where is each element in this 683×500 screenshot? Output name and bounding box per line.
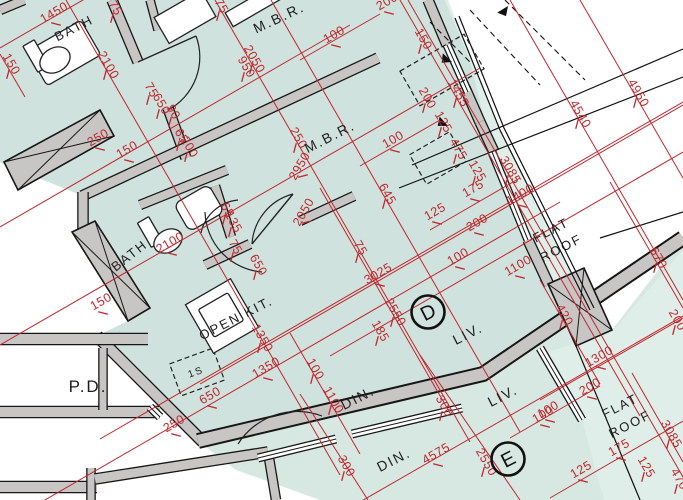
- dimension-tick: [171, 434, 181, 437]
- dimension-tick: [98, 312, 108, 315]
- room-label: P.D.: [69, 377, 108, 396]
- floorplan-canvas: 1450752100150756509065200150250205095075…: [0, 0, 683, 500]
- floorplan-svg: 1450752100150756509065200150250205095075…: [0, 0, 683, 500]
